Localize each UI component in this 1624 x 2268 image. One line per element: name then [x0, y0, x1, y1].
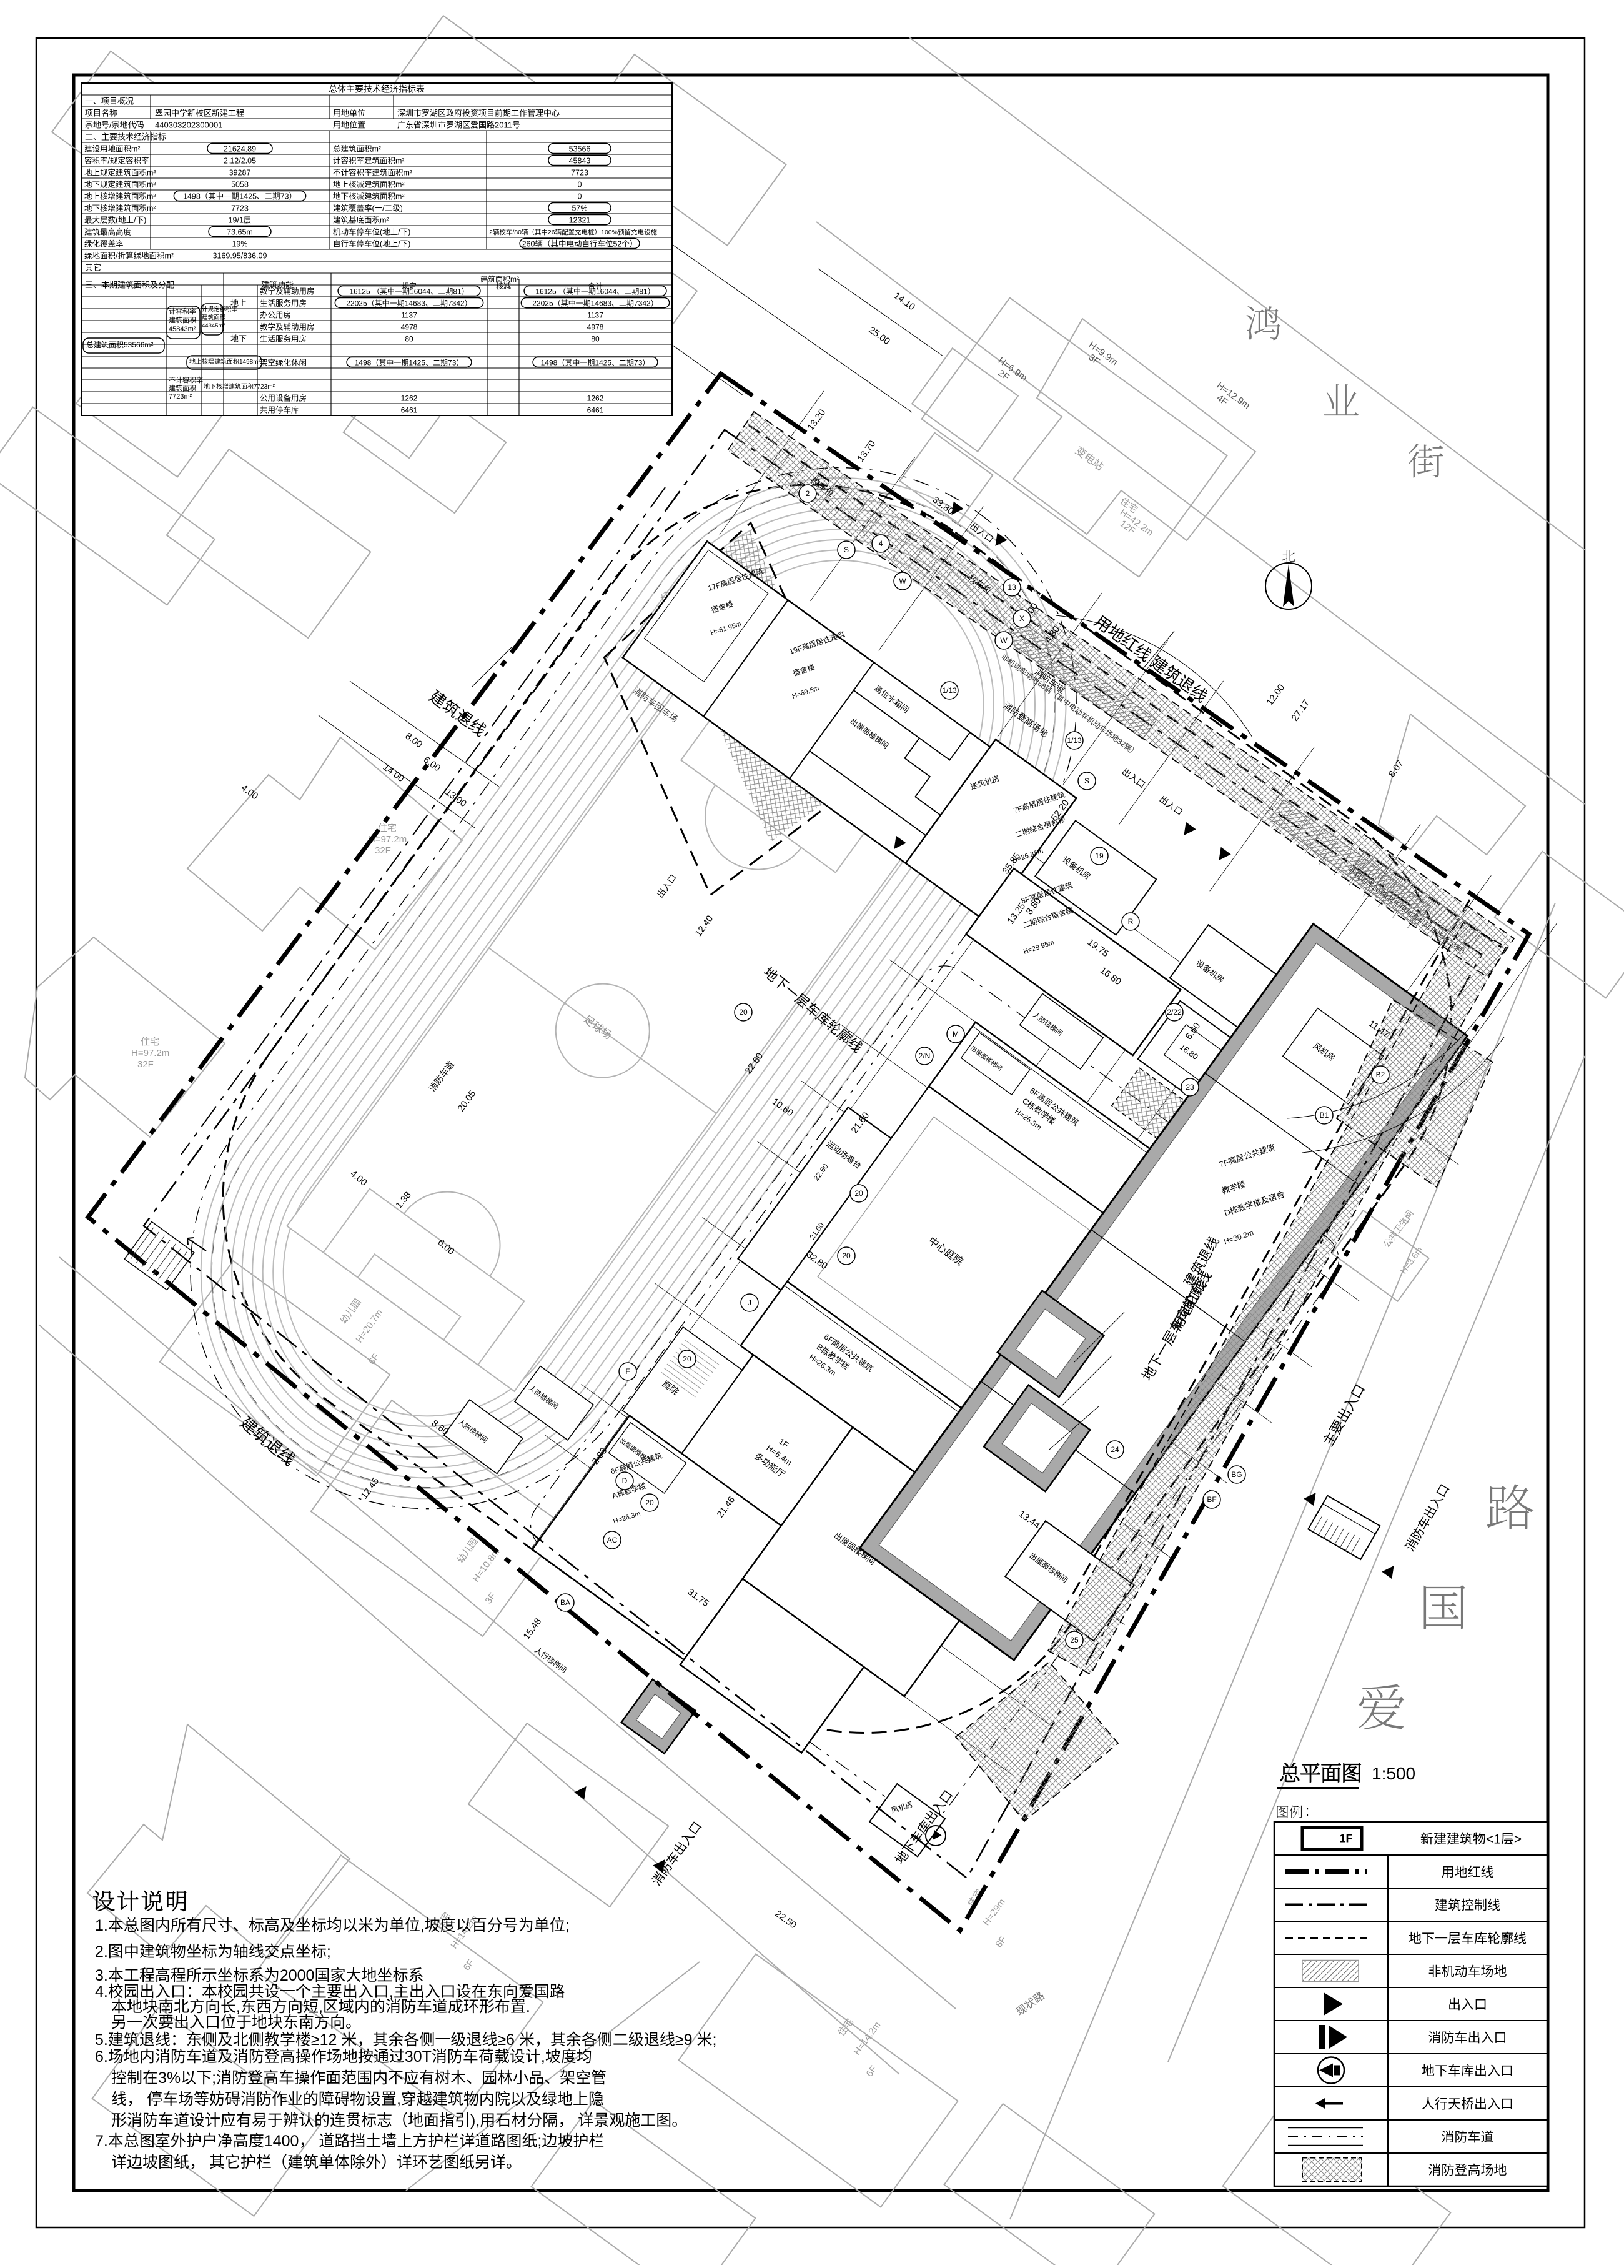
svg-text:2/N: 2/N — [919, 1052, 931, 1060]
svg-text:1137: 1137 — [587, 311, 603, 320]
svg-text:24: 24 — [1111, 1445, 1119, 1454]
svg-text:1F: 1F — [1339, 1833, 1352, 1845]
svg-text:非机动车场地: 非机动车场地 — [1428, 1965, 1507, 1979]
svg-text:生活服务用房: 生活服务用房 — [260, 334, 307, 344]
svg-text:7723m²: 7723m² — [169, 393, 192, 400]
svg-text:总体主要技术经济指标表: 总体主要技术经济指标表 — [329, 84, 425, 94]
svg-text:6461: 6461 — [401, 406, 418, 415]
svg-text:R: R — [1128, 917, 1134, 926]
svg-text:13.70: 13.70 — [855, 439, 878, 464]
svg-text:14.10: 14.10 — [892, 290, 917, 312]
svg-text:H=14.2m: H=14.2m — [852, 2020, 883, 2057]
svg-text:建筑基底面积m²: 建筑基底面积m² — [333, 216, 389, 225]
svg-text:5058: 5058 — [231, 181, 249, 189]
svg-text:20: 20 — [842, 1251, 851, 1260]
svg-text:2/22: 2/22 — [1167, 1008, 1182, 1017]
svg-text:建设用地面积m²: 建设用地面积m² — [84, 144, 141, 154]
svg-text:住宅: 住宅 — [378, 823, 397, 833]
svg-text:J: J — [748, 1298, 751, 1307]
svg-text:最大层数(地上/下): 最大层数(地上/下) — [84, 216, 146, 225]
svg-text:7723: 7723 — [231, 204, 249, 213]
svg-text:地下: 地下 — [230, 334, 247, 344]
svg-text:260辆（其中电动自行车位52个）: 260辆（其中电动自行车位52个） — [522, 239, 638, 249]
svg-text:80: 80 — [405, 335, 413, 344]
svg-text:地下核增建筑面积m²: 地下核增建筑面积m² — [84, 204, 156, 213]
svg-text:15.48: 15.48 — [521, 1616, 543, 1641]
svg-text:教学及辅助用房: 教学及辅助用房 — [260, 322, 315, 332]
svg-text:45843: 45843 — [569, 157, 591, 166]
svg-text:容积率/规定容积率: 容积率/规定容积率 — [84, 156, 149, 166]
svg-text:公用设备用房: 公用设备用房 — [260, 394, 307, 403]
svg-text:主要出入口: 主要出入口 — [1320, 1381, 1369, 1449]
svg-text:建筑最高高度: 建筑最高高度 — [84, 227, 132, 237]
svg-text:1/13: 1/13 — [942, 686, 957, 695]
svg-text:22025（其中一期14683、二期7342）: 22025（其中一期14683、二期7342） — [532, 299, 658, 308]
svg-text:3169.95/836.09: 3169.95/836.09 — [213, 252, 267, 261]
svg-text:20: 20 — [854, 1189, 863, 1198]
svg-text:现状路: 现状路 — [1014, 1990, 1046, 2018]
svg-text:教学及辅助用房: 教学及辅助用房 — [260, 287, 315, 296]
svg-text:BA: BA — [560, 1598, 570, 1607]
svg-text:AC: AC — [607, 1536, 618, 1544]
svg-text:7.本总图室外护户净高度1400， 道路挡土墙上方护栏详道路: 7.本总图室外护户净高度1400， 道路挡土墙上方护栏详道路图纸;边坡护栏 — [95, 2132, 604, 2150]
svg-text:项目名称: 项目名称 — [85, 109, 117, 118]
svg-text:440303202300001: 440303202300001 — [155, 121, 222, 130]
svg-text:办公用房: 办公用房 — [260, 311, 291, 320]
svg-text:架空绿化休闲: 架空绿化休闲 — [260, 358, 307, 367]
svg-text:44345m²: 44345m² — [202, 322, 225, 329]
svg-text:建筑面积: 建筑面积 — [169, 384, 196, 392]
svg-text:地下核减建筑面积m²: 地下核减建筑面积m² — [333, 192, 405, 201]
svg-text:宗地号/宗地代码: 宗地号/宗地代码 — [85, 121, 144, 130]
svg-text:H=97.2m: H=97.2m — [131, 1048, 169, 1058]
svg-text:14.00: 14.00 — [381, 762, 406, 784]
svg-text:6F: 6F — [462, 1957, 477, 1972]
svg-text:人行楼梯间: 人行楼梯间 — [533, 1645, 568, 1674]
svg-text:地下一层车库轮廓线: 地下一层车库轮廓线 — [1409, 1932, 1527, 1946]
svg-text:出入口: 出入口 — [1448, 1998, 1487, 2012]
svg-text:21624.89: 21624.89 — [224, 145, 256, 154]
svg-text:8.07: 8.07 — [1386, 758, 1405, 780]
svg-text:W: W — [899, 577, 906, 585]
svg-text:深圳市罗湖区政府投资项目前期工作管理中心: 深圳市罗湖区政府投资项目前期工作管理中心 — [397, 109, 560, 118]
svg-text:B2: B2 — [1376, 1070, 1385, 1079]
svg-text:4: 4 — [879, 539, 883, 548]
svg-text:6F: 6F — [864, 2064, 879, 2079]
svg-text:3.本工程高程所示坐标系为2000国家大地坐标系: 3.本工程高程所示坐标系为2000国家大地坐标系 — [95, 1967, 423, 1984]
svg-text:32F: 32F — [375, 845, 391, 856]
svg-text:23: 23 — [1186, 1083, 1194, 1092]
svg-text:1/13: 1/13 — [1067, 736, 1082, 745]
svg-text:翠园中学新校区新建工程: 翠园中学新校区新建工程 — [155, 109, 244, 118]
svg-text:本地块南北方向长,东西方向短,区域内的消防车道成环形布置.: 本地块南北方向长,东西方向短,区域内的消防车道成环形布置. — [111, 1998, 530, 2016]
svg-text:住宅: 住宅 — [836, 2017, 856, 2038]
svg-text:53566: 53566 — [569, 145, 591, 154]
svg-text:计规定容积率: 计规定容积率 — [202, 306, 238, 313]
svg-text:出入口: 出入口 — [1157, 794, 1184, 818]
svg-text:12.00: 12.00 — [1264, 682, 1287, 707]
svg-text:用地单位: 用地单位 — [333, 109, 365, 118]
svg-text:广东省深圳市罗湖区爱国路2011号: 广东省深圳市罗湖区爱国路2011号 — [397, 121, 520, 130]
svg-text:人行天桥出入口: 人行天桥出入口 — [1422, 2097, 1513, 2112]
svg-text:22025（其中一期14683、二期7342）: 22025（其中一期14683、二期7342） — [346, 299, 472, 308]
svg-text:W: W — [1000, 636, 1008, 645]
svg-text:三、本期建筑面积及分配: 三、本期建筑面积及分配 — [85, 281, 174, 290]
svg-text:地上核增建筑面积m²: 地上核增建筑面积m² — [84, 192, 156, 201]
svg-text:0: 0 — [578, 181, 582, 189]
svg-text:27.17: 27.17 — [1289, 698, 1312, 723]
svg-text:地下车库出入口: 地下车库出入口 — [1422, 2064, 1513, 2079]
svg-text:计容积率: 计容积率 — [169, 307, 196, 316]
svg-text:绿地面积/折算绿地面积m²: 绿地面积/折算绿地面积m² — [84, 251, 174, 261]
svg-text:20: 20 — [683, 1355, 691, 1363]
svg-text:自行车停车位(地上/下): 自行车停车位(地上/下) — [333, 239, 410, 249]
svg-text:消防车出入口: 消防车出入口 — [1428, 2031, 1507, 2046]
svg-text:共用停车库: 共用停车库 — [260, 405, 299, 415]
svg-text:20: 20 — [739, 1008, 748, 1017]
svg-text:1262: 1262 — [401, 394, 418, 403]
svg-text:BF: BF — [1207, 1495, 1216, 1504]
svg-text:8F: 8F — [994, 1934, 1009, 1949]
svg-text:地下核增建筑面积7723m²: 地下核增建筑面积7723m² — [204, 382, 275, 390]
svg-text:M: M — [953, 1030, 959, 1038]
svg-text:用地位置: 用地位置 — [333, 121, 365, 130]
svg-text:D: D — [622, 1476, 628, 1485]
svg-text:机动车停车位(地上/下): 机动车停车位(地上/下) — [333, 227, 410, 237]
svg-text:出入口: 出入口 — [1120, 767, 1147, 790]
svg-text:详边坡图纸， 其它护栏（建筑单体除外）详环艺图纸另详。: 详边坡图纸， 其它护栏（建筑单体除外）详环艺图纸另详。 — [111, 2154, 522, 2171]
svg-text:4978: 4978 — [587, 323, 604, 332]
svg-text:消防登高场地: 消防登高场地 — [1428, 2164, 1507, 2178]
svg-text:消防车道: 消防车道 — [1442, 2131, 1494, 2145]
svg-text:出入口: 出入口 — [968, 521, 995, 545]
svg-text:3F: 3F — [483, 1591, 498, 1606]
svg-text:地上核减建筑面积m²: 地上核减建筑面积m² — [333, 180, 405, 189]
svg-text:不计容积率: 不计容积率 — [169, 376, 203, 384]
svg-text:绿化覆盖率: 绿化覆盖率 — [84, 239, 124, 249]
svg-text:2.12/2.05: 2.12/2.05 — [224, 157, 256, 166]
svg-text:地下规定建筑面积m²: 地下规定建筑面积m² — [84, 180, 156, 189]
svg-text:二、主要技术经济指标: 二、主要技术经济指标 — [85, 132, 166, 142]
svg-text:32F: 32F — [137, 1059, 154, 1070]
svg-text:57%: 57% — [572, 204, 587, 213]
svg-text:S: S — [844, 545, 849, 554]
svg-text:22.50: 22.50 — [773, 1908, 798, 1931]
svg-text:6.场地内消防车道及消防登高操作场地按通过30T消防车荷载设: 6.场地内消防车道及消防登高操作场地按通过30T消防车荷载设计,坡度均 — [95, 2048, 592, 2066]
svg-text:消防车出入口: 消防车出入口 — [649, 1819, 705, 1888]
svg-text:2.图中建筑物坐标为轴线交点坐标;: 2.图中建筑物坐标为轴线交点坐标; — [95, 1943, 331, 1961]
svg-text:80: 80 — [591, 335, 600, 344]
svg-text:6.00: 6.00 — [422, 754, 443, 773]
svg-text:其它: 其它 — [85, 263, 101, 272]
svg-text:6461: 6461 — [587, 406, 604, 415]
svg-text:建筑覆盖率(一/二级): 建筑覆盖率(一/二级) — [333, 204, 403, 213]
svg-text:公共卫生间: 公共卫生间 — [1382, 1208, 1415, 1250]
svg-text:一、项目概况: 一、项目概况 — [85, 97, 134, 106]
svg-text:4978: 4978 — [401, 323, 418, 332]
svg-text:用地红线: 用地红线 — [1442, 1866, 1494, 1880]
svg-text:5.建筑退线：东侧及北侧教学楼≥12 米，其余各侧一级退线≥: 5.建筑退线：东侧及北侧教学楼≥12 米，其余各侧一级退线≥6 米，其余各侧二级… — [95, 2031, 716, 2049]
svg-text:核减: 核减 — [496, 282, 511, 291]
svg-text:控制在3%以下;消防登高车操作面范围内不应有树木、园林小品、: 控制在3%以下;消防登高车操作面范围内不应有树木、园林小品、架空管 — [111, 2069, 607, 2087]
svg-text:X: X — [1019, 614, 1024, 623]
svg-text:13.00: 13.00 — [443, 787, 468, 809]
svg-text:消防登高场地: 消防登高场地 — [1001, 700, 1049, 739]
svg-text:幼儿园: 幼儿园 — [455, 1536, 480, 1565]
svg-text:39287: 39287 — [229, 169, 251, 177]
svg-text:建筑面积: 建筑面积 — [169, 316, 196, 324]
svg-text:F: F — [625, 1367, 630, 1376]
svg-text:建筑控制线: 建筑控制线 — [1435, 1899, 1500, 1913]
svg-text:建筑退线: 建筑退线 — [237, 1413, 299, 1470]
svg-text:4.00: 4.00 — [239, 782, 260, 802]
svg-text:幼儿园: 幼儿园 — [339, 1297, 364, 1326]
svg-text:地上核增建筑面积1498m²: 地上核增建筑面积1498m² — [189, 357, 261, 366]
svg-text:1498（其中一期1425、二期73）: 1498（其中一期1425、二期73） — [541, 358, 650, 367]
svg-text:另一次要出入口位于地块东南方向。: 另一次要出入口位于地块东南方向。 — [111, 2014, 361, 2031]
svg-text:20: 20 — [645, 1498, 654, 1507]
svg-text:16125 （其中一期16044、二期81）: 16125 （其中一期16044、二期81） — [535, 287, 655, 296]
svg-text:1137: 1137 — [401, 311, 417, 320]
svg-text:1.本总图内所有尺寸、标高及坐标均以米为单位,坡度以百分号为: 1.本总图内所有尺寸、标高及坐标均以米为单位,坡度以百分号为单位; — [95, 1917, 570, 1934]
svg-text:25.00: 25.00 — [867, 324, 892, 347]
svg-text:B1: B1 — [1320, 1111, 1329, 1120]
svg-text:新建建筑物<1层>: 新建建筑物<1层> — [1420, 1833, 1522, 1847]
svg-text:不计容积率建筑面积m²: 不计容积率建筑面积m² — [333, 168, 412, 177]
svg-text:25: 25 — [1070, 1636, 1079, 1644]
svg-text:6F: 6F — [367, 1351, 382, 1366]
svg-text:13.20: 13.20 — [805, 407, 828, 432]
svg-text:8.00: 8.00 — [404, 730, 425, 750]
svg-text:计容积率建筑面积m²: 计容积率建筑面积m² — [333, 156, 405, 166]
svg-text:7723: 7723 — [571, 169, 588, 177]
svg-text:13: 13 — [1008, 583, 1016, 592]
svg-text:1498（其中一期1425、二期73）: 1498（其中一期1425、二期73） — [355, 358, 464, 367]
svg-text:1498（其中一期1425、二期73）: 1498（其中一期1425、二期73） — [183, 192, 297, 201]
svg-text:地上规定建筑面积m²: 地上规定建筑面积m² — [84, 168, 156, 177]
svg-text:19%: 19% — [232, 240, 247, 249]
svg-text:19/1层: 19/1层 — [229, 216, 252, 225]
svg-text:2: 2 — [806, 489, 810, 498]
svg-text:住宅: 住宅 — [141, 1037, 159, 1047]
svg-text:建筑面积: 建筑面积 — [202, 314, 226, 321]
svg-text:消防车出入口: 消防车出入口 — [1402, 1482, 1452, 1554]
svg-text:12321: 12321 — [569, 216, 591, 225]
svg-text:总建筑面积m²: 总建筑面积m² — [333, 144, 381, 154]
svg-text:总建筑面积53566m²: 总建筑面积53566m² — [86, 340, 153, 349]
svg-text:16125 （其中一期16044、二期81）: 16125 （其中一期16044、二期81） — [349, 287, 468, 296]
svg-text:S: S — [1084, 777, 1089, 785]
svg-text:线， 停车场等妨碍消防作业的障碍物设置,穿越建筑物内院以及绿: 线， 停车场等妨碍消防作业的障碍物设置,穿越建筑物内院以及绿地上隐 — [111, 2091, 604, 2108]
svg-text:73.65m: 73.65m — [227, 228, 253, 237]
svg-text:生活服务用房: 生活服务用房 — [260, 299, 307, 308]
svg-text:2辆校车/80辆（其中26辆配置充电桩）100%预留充电设施: 2辆校车/80辆（其中26辆配置充电桩）100%预留充电设施 — [489, 228, 657, 236]
svg-text:变电站: 变电站 — [1073, 445, 1106, 473]
svg-text:1262: 1262 — [587, 394, 604, 403]
svg-text:19: 19 — [1095, 852, 1104, 860]
svg-text:形消防车道设计应有易于辨认的连贯标志（地面指引),用石材分隔: 形消防车道设计应有易于辨认的连贯标志（地面指引),用石材分隔， 详景观施工图。 — [111, 2112, 687, 2129]
svg-text::: : — [1305, 1803, 1309, 1819]
svg-text:BG: BG — [1231, 1470, 1242, 1479]
svg-text:1:500: 1:500 — [1372, 1764, 1415, 1783]
svg-text:H=20.7m: H=20.7m — [354, 1308, 385, 1345]
svg-text:45843m²: 45843m² — [169, 326, 196, 333]
svg-text:0: 0 — [578, 192, 582, 201]
svg-text:H=29m: H=29m — [981, 1897, 1008, 1927]
